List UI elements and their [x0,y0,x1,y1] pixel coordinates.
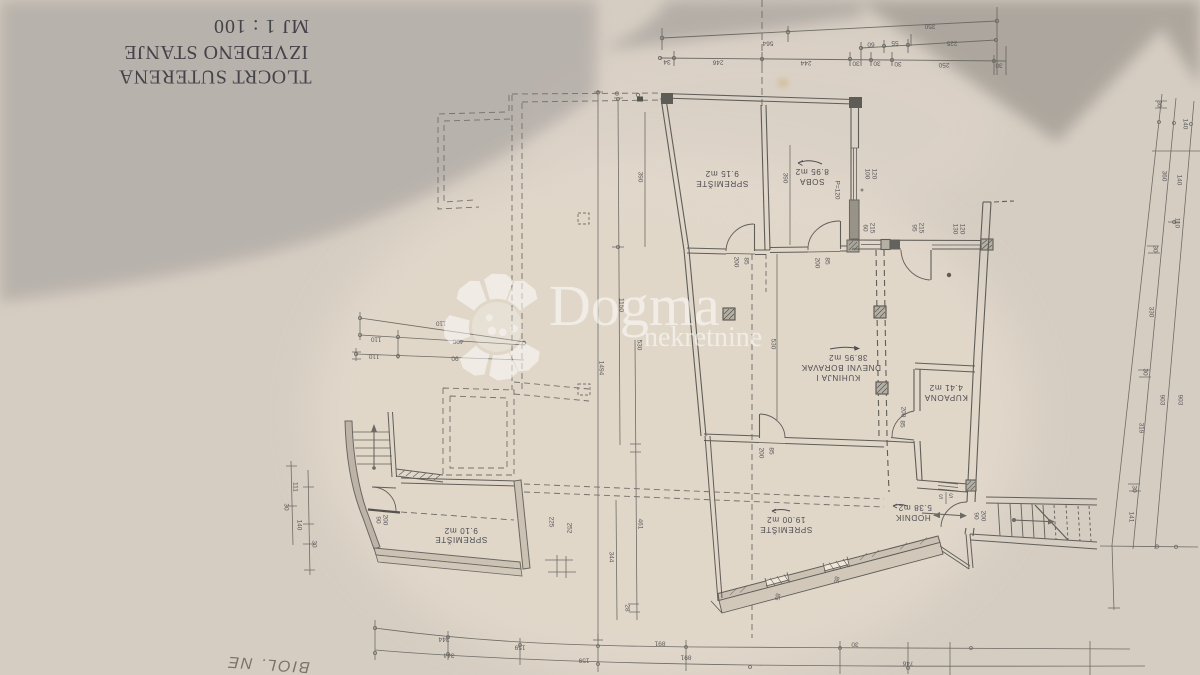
svg-text:28: 28 [624,604,631,612]
svg-text:30: 30 [1131,485,1138,493]
svg-text:IZVEDENO STANJE: IZVEDENO STANJE [124,41,308,63]
svg-text:60: 60 [867,41,875,48]
svg-text:110: 110 [1174,218,1181,229]
svg-text:246: 246 [712,59,723,66]
svg-text:SPREMIŠTE: SPREMIŠTE [760,525,813,535]
svg-text:90: 90 [973,512,980,520]
svg-text:390: 390 [637,172,644,183]
svg-text:30: 30 [1156,100,1163,108]
svg-text:390: 390 [782,173,789,184]
svg-text:120: 120 [959,224,966,235]
svg-text:nekretnine: nekretnine [644,322,762,353]
svg-text:215: 215 [918,223,925,234]
svg-text:S: S [948,492,953,499]
svg-text:85: 85 [824,257,831,265]
svg-text:110: 110 [370,336,381,343]
svg-text:TLOCRT SUTERENA: TLOCRT SUTERENA [118,66,311,88]
svg-text:85: 85 [899,420,906,428]
svg-text:891: 891 [680,654,691,661]
svg-text:34: 34 [663,58,671,65]
svg-text:891: 891 [654,640,665,647]
svg-text:225: 225 [946,40,957,47]
svg-text:319: 319 [1138,423,1145,434]
svg-text:350: 350 [924,23,935,30]
svg-text:360: 360 [1161,171,1168,182]
svg-text:4.41 m2: 4.41 m2 [929,383,963,392]
svg-text:SOBA: SOBA [799,177,824,186]
svg-text:55: 55 [891,39,899,46]
svg-text:140: 140 [296,520,303,531]
svg-text:HODNIK: HODNIK [895,513,930,522]
svg-text:200: 200 [900,407,907,418]
svg-text:120: 120 [871,169,878,180]
svg-text:200: 200 [980,511,987,522]
svg-text:P=120: P=120 [834,181,841,200]
svg-text:215: 215 [869,223,876,234]
svg-text:200: 200 [733,257,740,268]
svg-text:S: S [938,493,943,500]
svg-text:244: 244 [800,59,811,66]
svg-text:30: 30 [1152,245,1159,253]
svg-text:KUHINJA I: KUHINJA I [816,373,861,382]
svg-text:30: 30 [995,62,1003,69]
svg-text:903: 903 [1159,395,1166,406]
svg-text:110: 110 [368,353,379,360]
svg-text:200: 200 [758,448,765,459]
svg-text:30: 30 [1142,368,1149,376]
svg-text:130: 130 [952,224,959,235]
svg-text:530: 530 [770,339,777,350]
svg-text:159: 159 [514,644,525,651]
svg-text:141: 141 [1128,512,1135,523]
svg-text:85: 85 [768,447,775,455]
svg-text:344: 344 [608,552,615,563]
svg-text:30: 30 [311,540,318,548]
svg-text:30: 30 [852,60,860,67]
svg-text:9.10 m2: 9.10 m2 [444,526,478,535]
svg-text:140: 140 [1176,175,1183,186]
svg-text:250: 250 [938,61,949,68]
svg-text:344: 344 [438,636,449,643]
svg-text:30: 30 [283,503,290,511]
svg-text:903: 903 [1177,395,1184,406]
svg-text:30: 30 [851,641,859,648]
svg-text:60: 60 [862,224,869,232]
svg-text:564: 564 [762,40,773,47]
svg-text:746: 746 [902,660,913,667]
svg-text:344: 344 [443,652,454,659]
svg-text:19.00 m2: 19.00 m2 [767,515,806,524]
svg-text:90: 90 [451,355,459,362]
svg-text:SPREMIŠTE: SPREMIŠTE [696,179,749,189]
svg-text:252: 252 [566,523,573,534]
svg-text:38.95 m2: 38.95 m2 [829,353,868,362]
svg-text:159: 159 [578,657,589,664]
svg-text:MJ 1 : 100: MJ 1 : 100 [213,15,309,37]
svg-text:30: 30 [894,60,902,67]
svg-text:100: 100 [864,169,871,180]
svg-text:90: 90 [375,516,382,524]
svg-text:530: 530 [636,340,643,351]
svg-text:200: 200 [814,258,821,269]
svg-text:111: 111 [292,482,299,492]
svg-text:30: 30 [873,60,881,67]
svg-text:1494: 1494 [598,361,605,376]
svg-text:KUPAONA: KUPAONA [924,393,968,402]
svg-text:200: 200 [382,515,389,526]
svg-text:9.15 m2: 9.15 m2 [705,169,739,178]
svg-text:DNEVNI BORAVAK: DNEVNI BORAVAK [801,363,881,372]
svg-text:85: 85 [743,257,750,265]
svg-text:SPREMIŠTE: SPREMIŠTE [435,535,488,545]
svg-text:461: 461 [637,519,644,530]
svg-text:225: 225 [548,517,555,528]
svg-text:140: 140 [1182,119,1189,130]
svg-text:8.95 m2: 8.95 m2 [795,167,829,176]
svg-text:330: 330 [1148,307,1155,318]
svg-text:95: 95 [911,224,918,232]
